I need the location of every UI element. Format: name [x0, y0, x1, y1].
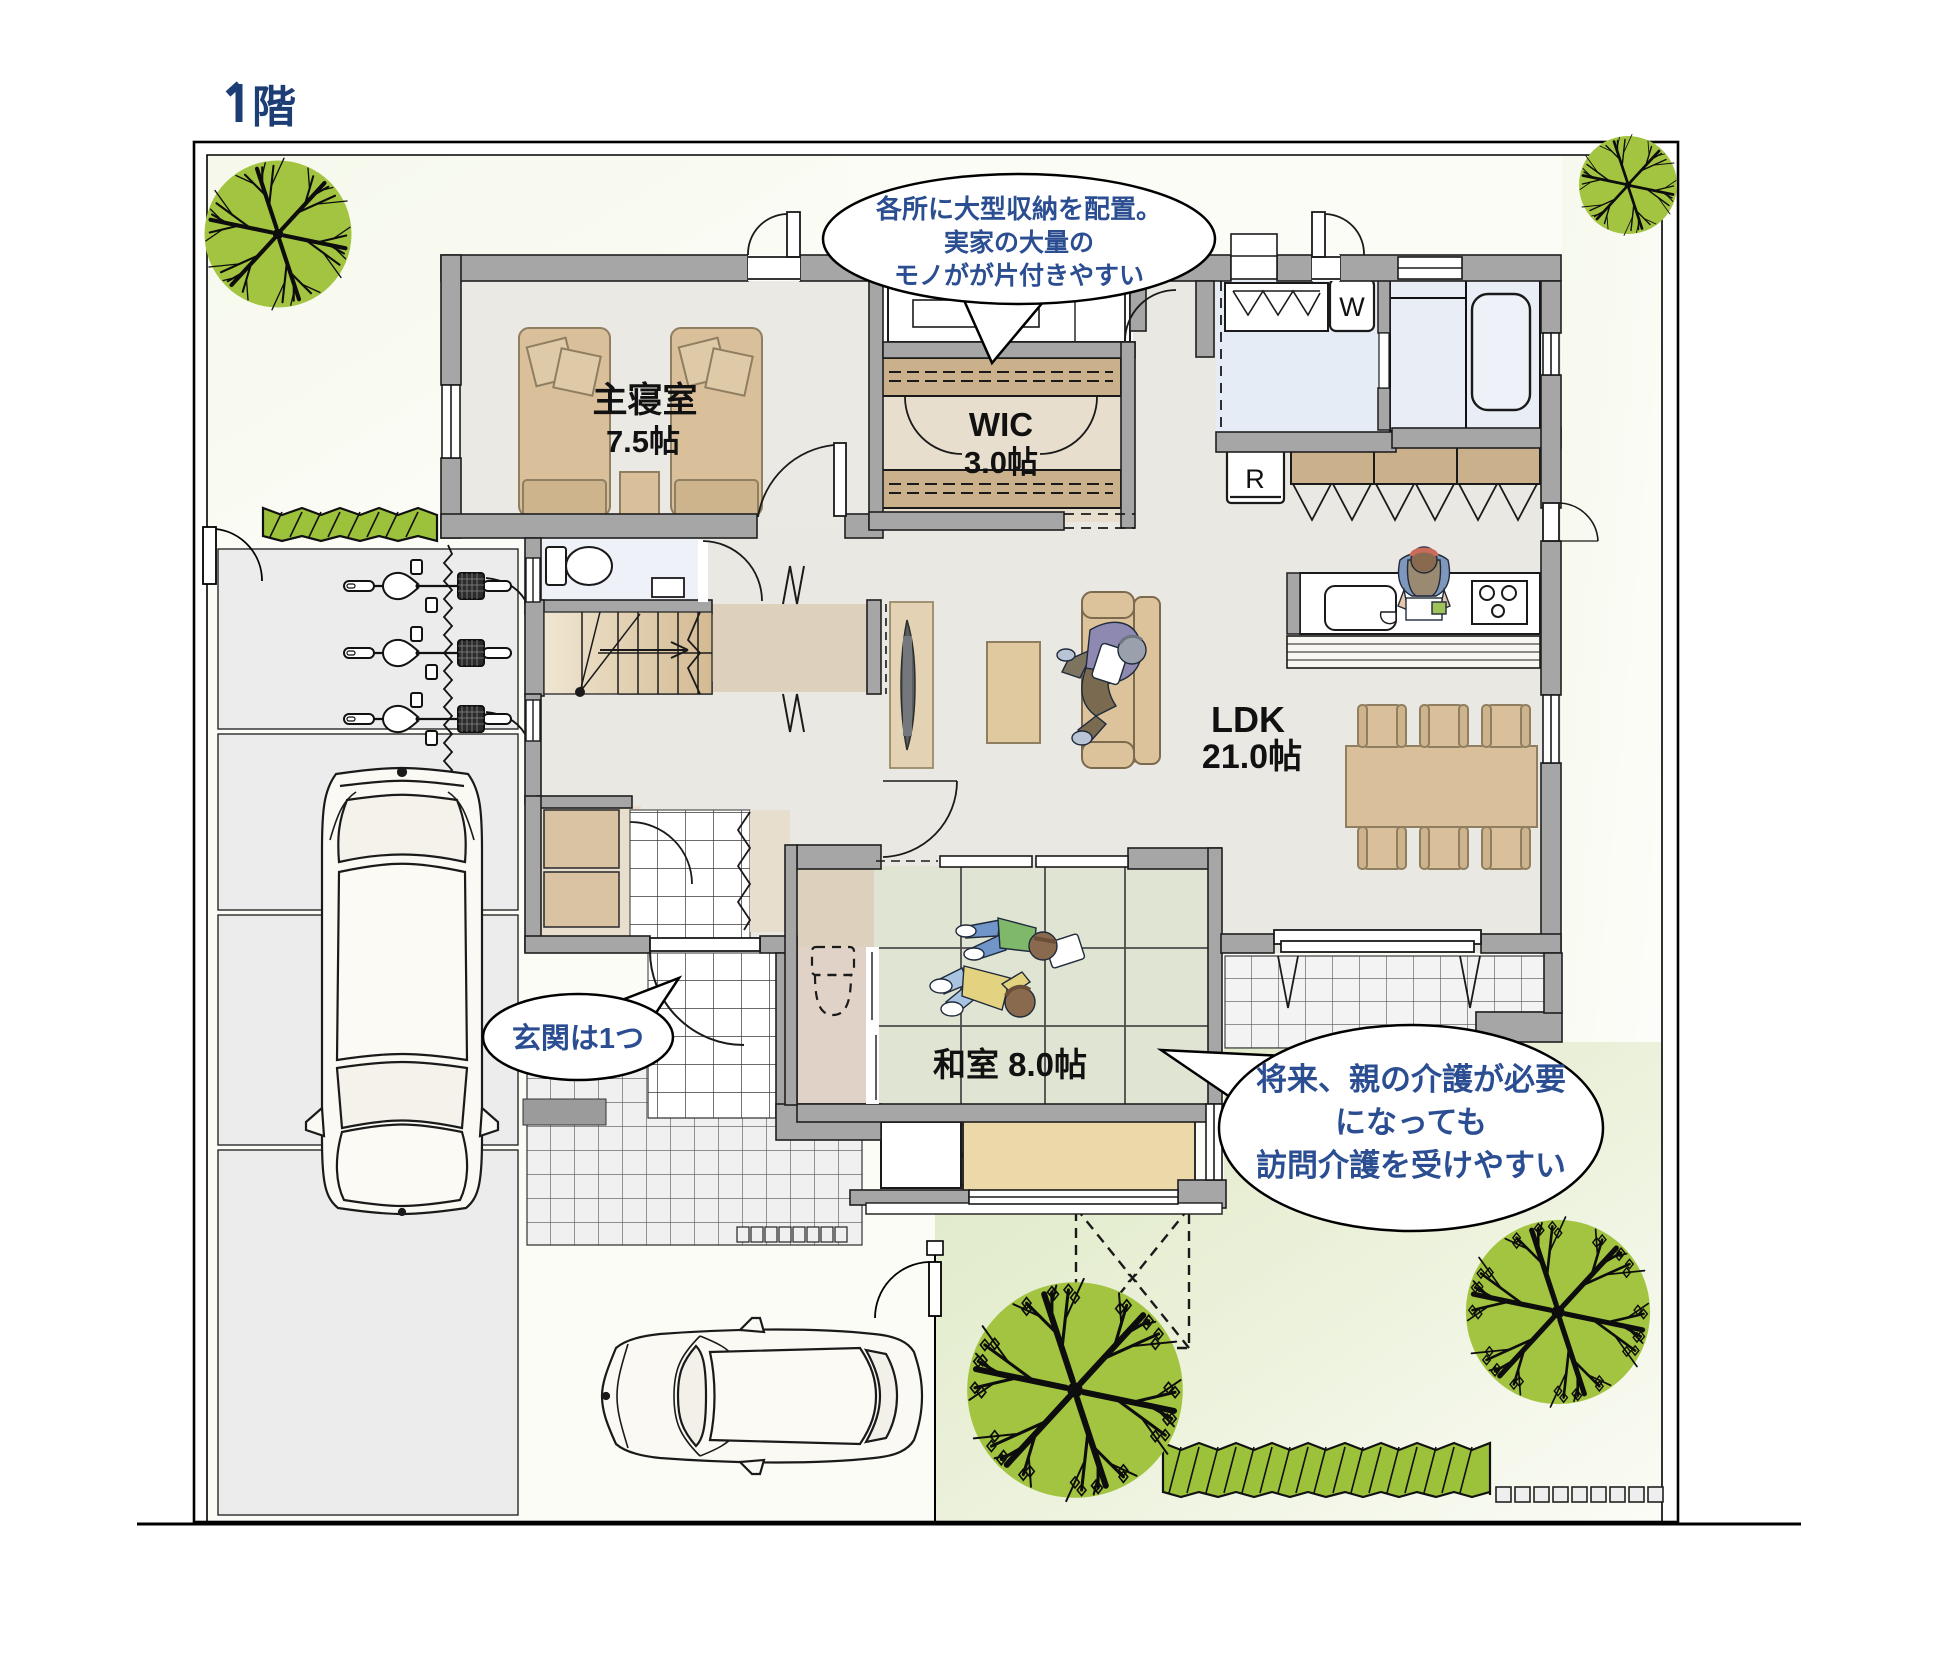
- svg-text:主寝室: 主寝室: [592, 380, 697, 420]
- svg-text:21.0帖: 21.0帖: [1202, 738, 1302, 776]
- svg-text:訪問介護を受けやすい: 訪問介護を受けやすい: [1256, 1148, 1566, 1183]
- svg-text:各所に大型収納を配置。: 各所に大型収納を配置。: [875, 194, 1162, 224]
- svg-text:将来、親の介護が必要: 将来、親の介護が必要: [1256, 1062, 1566, 1097]
- svg-text:WIC: WIC: [969, 406, 1033, 443]
- svg-text:になっても: になっても: [1335, 1105, 1487, 1140]
- svg-text:和室 8.0帖: 和室 8.0帖: [933, 1046, 1087, 1083]
- svg-text:7.5帖: 7.5帖: [606, 424, 680, 459]
- svg-text:モノがが片付きやすい: モノがが片付きやすい: [894, 261, 1144, 290]
- svg-text:階: 階: [252, 83, 296, 132]
- svg-text:R: R: [1245, 464, 1265, 494]
- svg-text:3.0帖: 3.0帖: [964, 445, 1038, 480]
- svg-text:実家の大量の: 実家の大量の: [944, 228, 1094, 257]
- svg-text:W: W: [1339, 292, 1365, 322]
- svg-text:LDK: LDK: [1211, 699, 1285, 740]
- svg-text:玄関は1つ: 玄関は1つ: [512, 1021, 644, 1055]
